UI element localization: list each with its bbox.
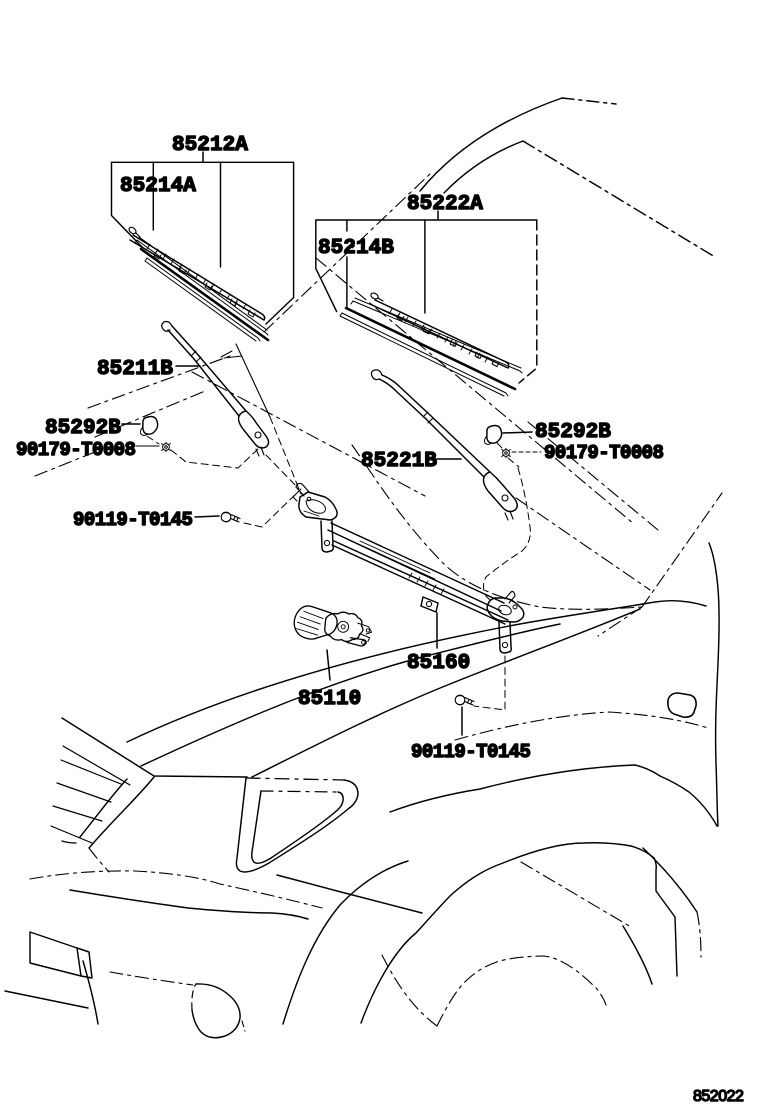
- svg-text:85214B: 85214B: [318, 237, 394, 260]
- svg-text:90179-T0008: 90179-T0008: [544, 442, 664, 464]
- svg-text:85110: 85110: [298, 688, 361, 711]
- svg-text:85222A: 85222A: [407, 193, 483, 216]
- svg-text:852022: 852022: [693, 1088, 744, 1105]
- svg-text:85292B: 85292B: [535, 421, 611, 444]
- svg-text:85214A: 85214A: [120, 175, 196, 198]
- svg-text:85292B: 85292B: [45, 417, 121, 440]
- svg-text:85211B: 85211B: [97, 358, 173, 381]
- svg-text:90179-T0008: 90179-T0008: [16, 439, 136, 461]
- svg-text:90119-T0145: 90119-T0145: [411, 741, 531, 763]
- svg-text:85212A: 85212A: [172, 134, 248, 157]
- svg-text:85160: 85160: [407, 652, 470, 675]
- svg-text:85221B: 85221B: [361, 450, 437, 473]
- svg-text:90119-T0145: 90119-T0145: [73, 509, 193, 531]
